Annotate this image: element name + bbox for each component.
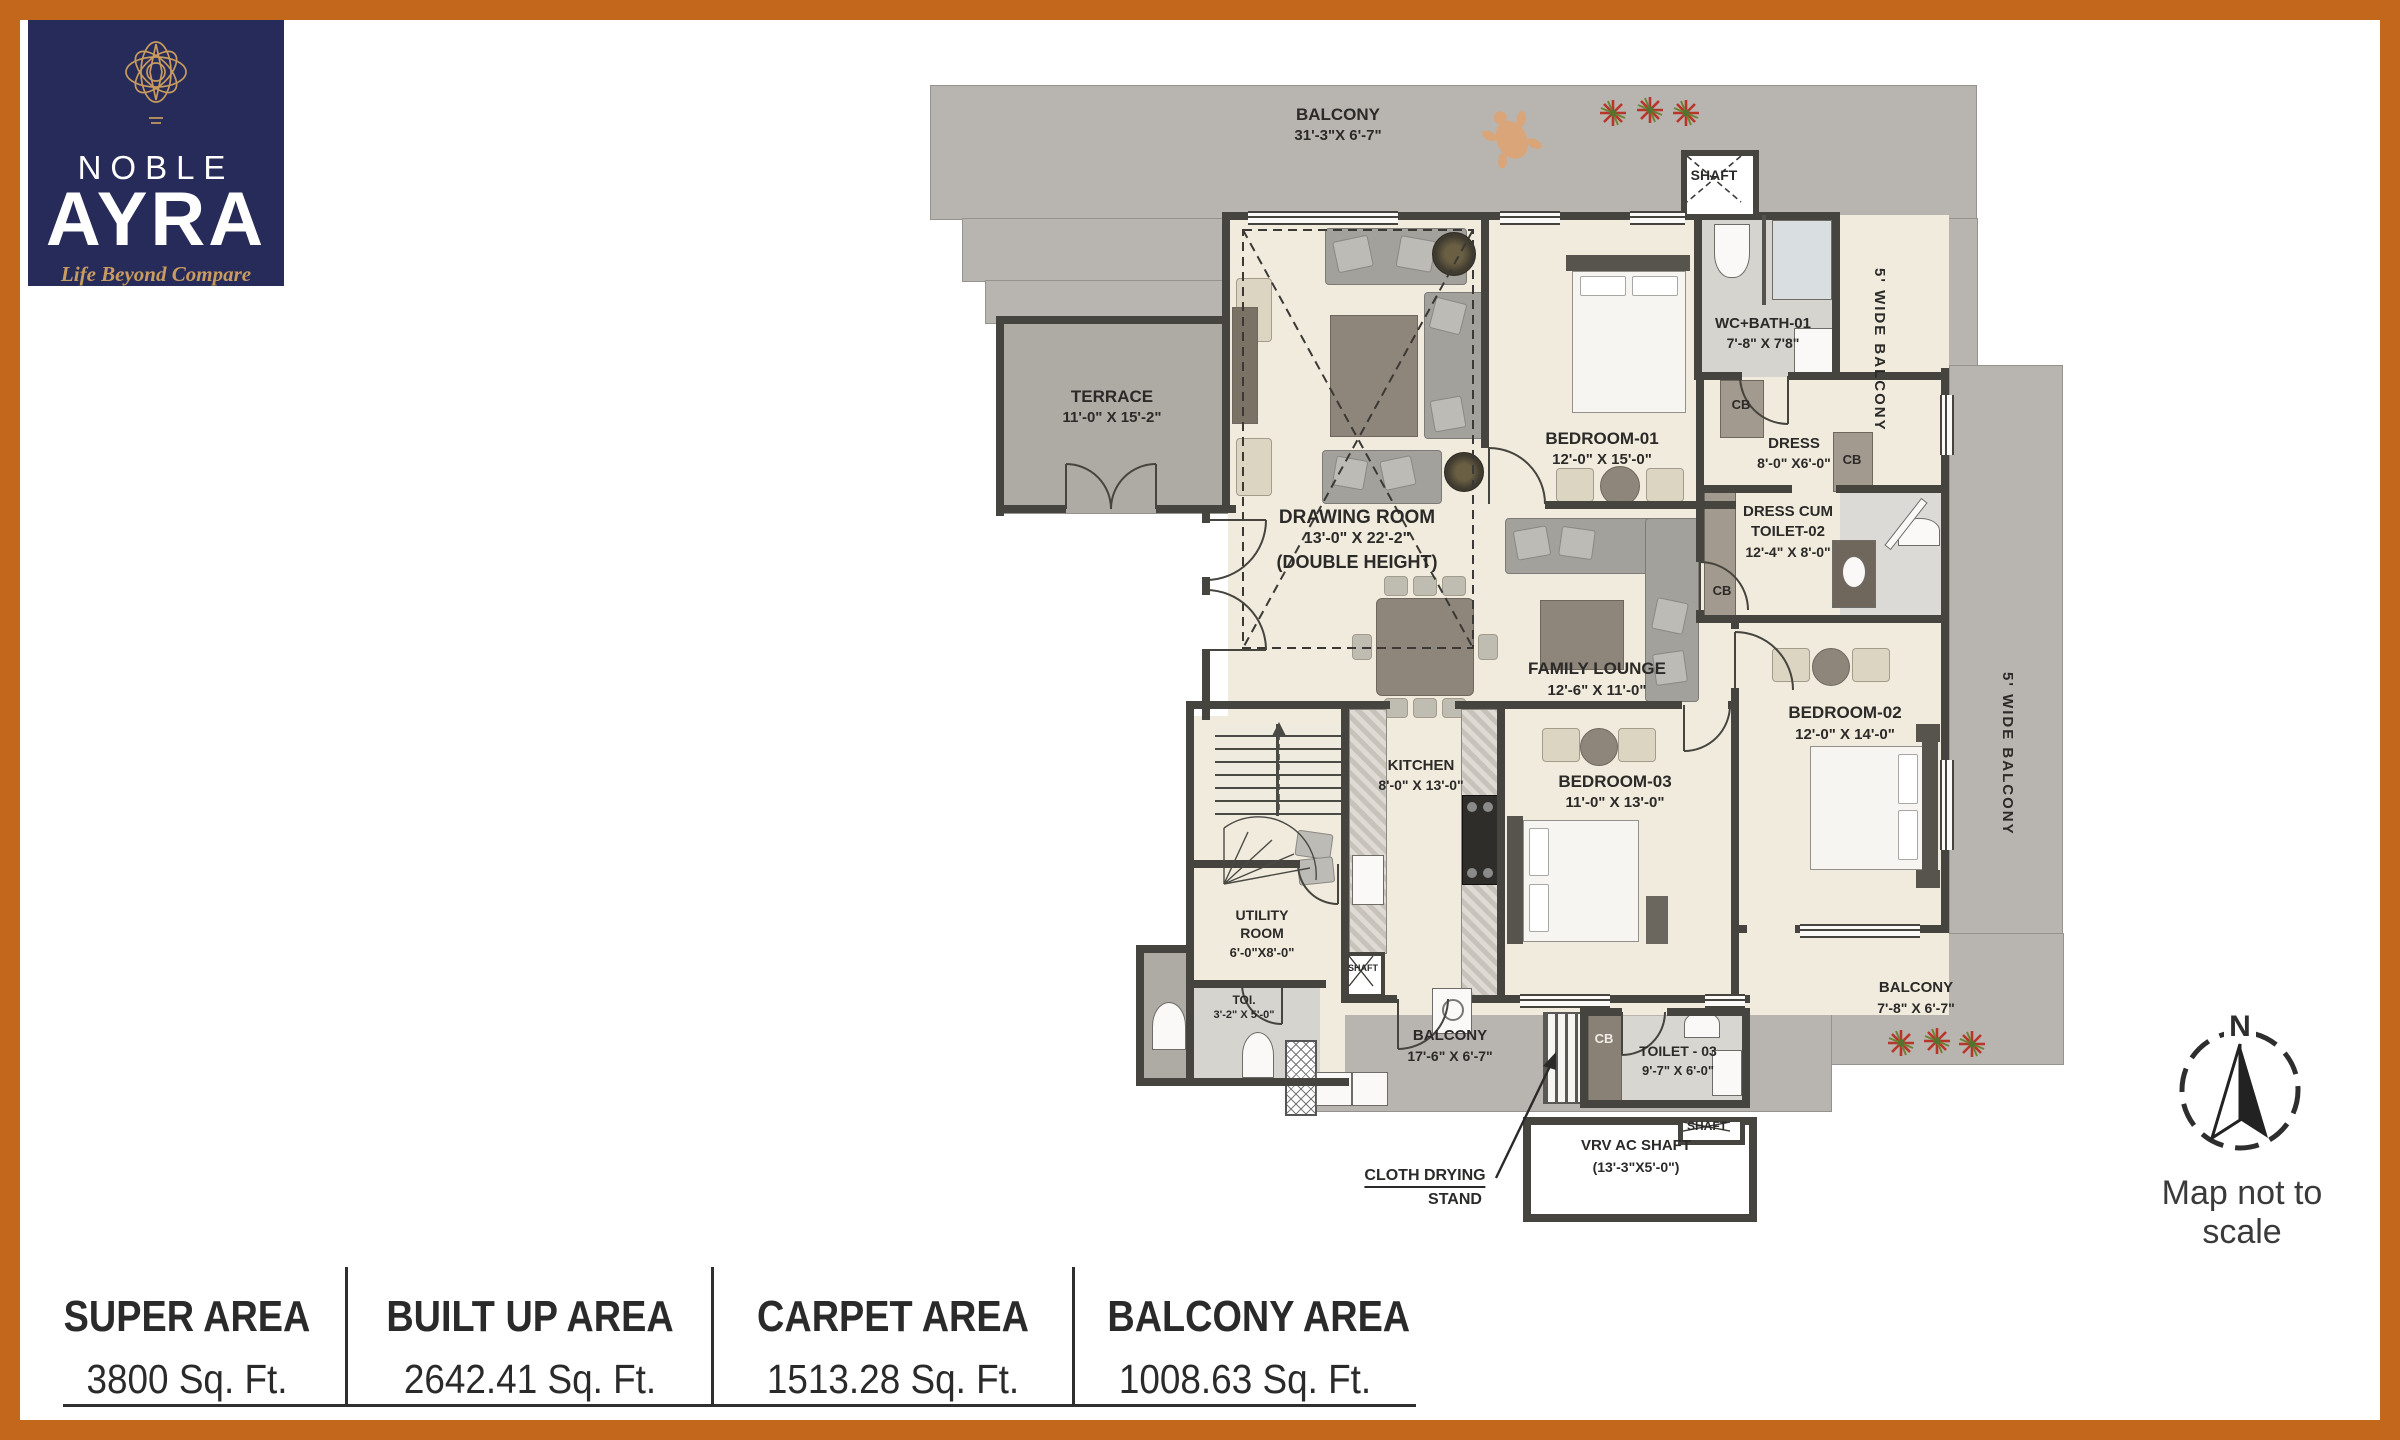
label-family-lounge-dims: 12'-6" X 11'-0" — [1548, 683, 1647, 698]
label-cb: CB — [1843, 453, 1862, 466]
label-bedroom1-dims: 12'-0" X 15'-0" — [1552, 452, 1652, 467]
label-bedroom2: BEDROOM-02 — [1788, 704, 1901, 721]
label-bedroom3-dims: 11'-0" X 13'-0" — [1566, 795, 1665, 810]
label-vrv-2: (13'-3"X5'-0") — [1593, 1160, 1680, 1174]
label-cb: CB — [1713, 584, 1732, 597]
stat-value: 1513.28 Sq. Ft. — [743, 1356, 1044, 1403]
label-balcony-rear: BALCONY — [1413, 1028, 1487, 1043]
stat-divider — [1072, 1267, 1075, 1407]
label-kitchen: KITCHEN — [1388, 758, 1455, 773]
label-bedroom3: BEDROOM-03 — [1558, 773, 1671, 790]
label-drawing-room-dims: 13'-0" X 22'-2" — [1304, 531, 1410, 547]
label-dress: DRESS — [1768, 436, 1820, 451]
label-drawing-room-note: (DOUBLE HEIGHT) — [1277, 553, 1438, 571]
label-wcbath1: WC+BATH-01 — [1715, 316, 1811, 331]
leader-arrow — [1496, 1052, 1556, 1178]
label-dress-toilet2-1: DRESS CUM — [1743, 504, 1833, 519]
label-shaft-top: SHAFT — [1691, 168, 1738, 182]
label-shaft-kitchen: SHAFT — [1348, 964, 1378, 973]
stair-winder — [1224, 817, 1316, 884]
stat-built-up-area: BUILT UP AREA 2642.41 Sq. Ft. — [362, 1292, 698, 1403]
label-balcony-top-dims: 31'-3"X 6'-7" — [1294, 128, 1381, 143]
stat-value: 3800 Sq. Ft. — [48, 1356, 327, 1403]
label-shaft-bottom: SHAFT — [1687, 1120, 1727, 1132]
stat-value: 2642.41 Sq. Ft. — [379, 1356, 681, 1403]
stat-underline — [63, 1404, 1416, 1407]
stat-label: SUPER AREA — [54, 1292, 321, 1342]
label-kitchen-dims: 8'-0" X 13'-0" — [1378, 778, 1463, 792]
stat-label: BUILT UP AREA — [386, 1292, 675, 1342]
label-wcbath1-dims: 7'-8" X 7'8" — [1727, 336, 1800, 350]
label-utility-dims: 6'-0"X8'-0" — [1230, 946, 1295, 959]
stat-divider — [345, 1267, 348, 1407]
label-toilet3: TOILET - 03 — [1639, 1044, 1717, 1058]
brand-tagline: Life Beyond Compare — [28, 262, 284, 287]
label-cb: CB — [1732, 398, 1751, 411]
floorplan-page: NOBLE AYRA Life Beyond Compare — [0, 0, 2400, 1440]
stat-carpet-area: CARPET AREA 1513.28 Sq. Ft. — [726, 1292, 1060, 1403]
label-toi: TOI. — [1232, 994, 1255, 1006]
label-bedroom1: BEDROOM-01 — [1545, 430, 1658, 447]
label-wide-balcony-mid: 5' WIDE BALCONY — [2000, 672, 2015, 836]
label-vrv-1: VRV AC SHAFT — [1581, 1138, 1691, 1153]
brand-name-main: AYRA — [28, 187, 284, 254]
label-dress-dims: 8'-0" X6'-0" — [1757, 456, 1831, 470]
label-utility-2: ROOM — [1240, 926, 1284, 940]
stat-label: BALCONY AREA — [1107, 1292, 1382, 1342]
door-arcs — [1066, 376, 1793, 1055]
label-drawing-room: DRAWING ROOM — [1279, 508, 1435, 527]
label-wide-balcony-top: 5' WIDE BALCONY — [1872, 268, 1887, 432]
label-balcony-top: BALCONY — [1296, 106, 1380, 123]
stat-label: CARPET AREA — [749, 1292, 1036, 1342]
stat-super-area: SUPER AREA 3800 Sq. Ft. — [32, 1292, 342, 1403]
label-bedroom2-dims: 12'-0" X 14'-0" — [1795, 727, 1895, 742]
plan-linework — [0, 0, 2400, 1440]
label-dress-toilet2-2: TOILET-02 — [1751, 524, 1825, 539]
label-dress-toilet2-dims: 12'-4" X 8'-0" — [1745, 545, 1830, 559]
stat-balcony-area: BALCONY AREA 1008.63 Sq. Ft. — [1085, 1292, 1405, 1403]
label-family-lounge: FAMILY LOUNGE — [1528, 660, 1666, 677]
label-balcony-br: BALCONY — [1879, 980, 1953, 995]
stat-value: 1008.63 Sq. Ft. — [1101, 1356, 1389, 1403]
label-terrace: TERRACE — [1071, 388, 1153, 405]
stat-divider — [711, 1267, 714, 1407]
label-toilet3-dims: 9'-7" X 6'-0" — [1642, 1064, 1714, 1077]
compass-north-letter: N — [2229, 1010, 2251, 1043]
brand-logo: NOBLE AYRA Life Beyond Compare — [28, 14, 284, 286]
label-terrace-dims: 11'-0" X 15'-2" — [1063, 410, 1162, 425]
label-cloth-drying-1: CLOTH DRYING — [1364, 1168, 1485, 1188]
map-scale-note: Map not to scale — [2122, 1174, 2362, 1252]
lotus-ornament-icon — [100, 24, 212, 136]
label-utility-1: UTILITY — [1236, 908, 1289, 922]
label-cloth-drying-2: STAND — [1428, 1192, 1482, 1208]
north-compass-icon: N — [2168, 1002, 2312, 1170]
label-balcony-br-dims: 7'-8" X 6'-7" — [1877, 1001, 1955, 1015]
label-cb: CB — [1595, 1032, 1614, 1045]
label-balcony-rear-dims: 17'-6" X 6'-7" — [1407, 1049, 1492, 1063]
label-toi-dims: 3'-2" X 5'-0" — [1214, 1010, 1275, 1021]
stair-direction-arrow — [1272, 722, 1286, 810]
